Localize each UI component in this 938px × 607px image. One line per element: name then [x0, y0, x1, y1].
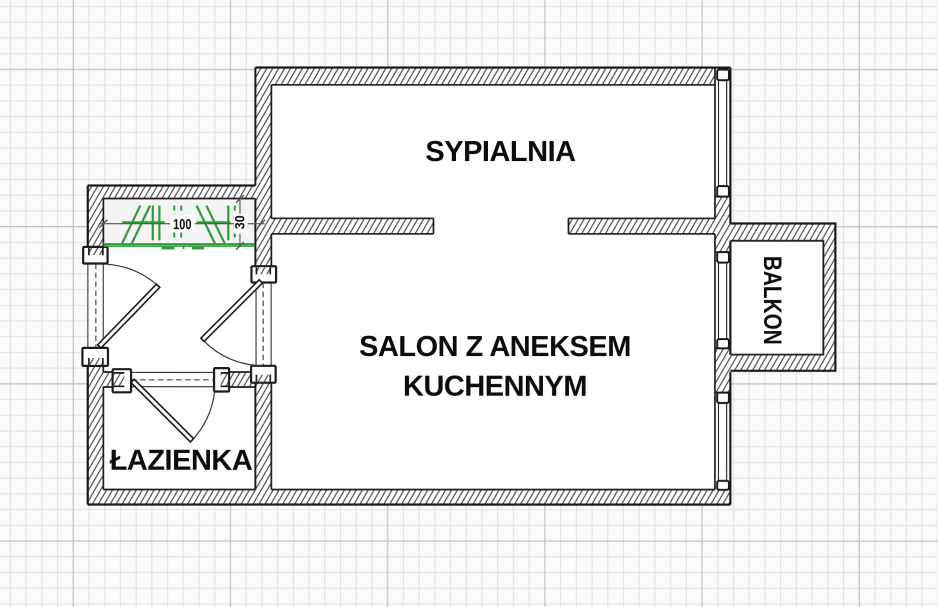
svg-text:100: 100 — [173, 217, 191, 233]
svg-text:BALKON: BALKON — [758, 256, 786, 345]
svg-text:SYPIALNIA: SYPIALNIA — [425, 136, 576, 168]
svg-text:SALON Z ANEKSEM: SALON Z ANEKSEM — [359, 331, 631, 363]
svg-text:KUCHENNYM: KUCHENNYM — [403, 371, 587, 403]
svg-text:30: 30 — [232, 215, 247, 229]
svg-text:ŁAZIENKA: ŁAZIENKA — [110, 445, 253, 477]
